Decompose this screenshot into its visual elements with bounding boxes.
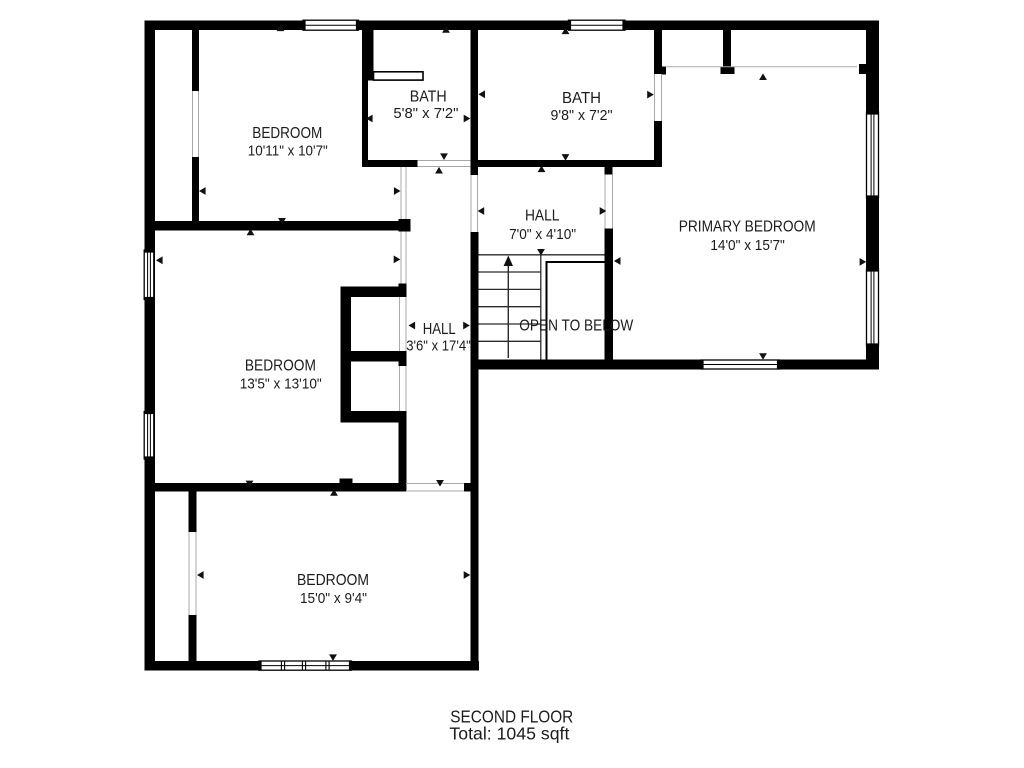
svg-text:BEDROOM: BEDROOM <box>297 572 369 589</box>
svg-text:5'8" x 7'2": 5'8" x 7'2" <box>393 105 458 122</box>
svg-text:10'11" x 10'7": 10'11" x 10'7" <box>248 142 328 159</box>
svg-text:BATH: BATH <box>410 88 447 105</box>
svg-text:BATH: BATH <box>562 90 601 107</box>
svg-text:PRIMARY BEDROOM: PRIMARY BEDROOM <box>679 218 816 235</box>
svg-text:3'6" x 17'4": 3'6" x 17'4" <box>406 338 471 355</box>
svg-text:BEDROOM: BEDROOM <box>245 358 316 375</box>
svg-text:7'0" x 4'10": 7'0" x 4'10" <box>509 226 576 243</box>
svg-text:HALL: HALL <box>525 208 560 225</box>
svg-text:HALL: HALL <box>423 321 456 338</box>
svg-text:13'5" x 13'10": 13'5" x 13'10" <box>240 376 322 393</box>
svg-text:14'0" x 15'7": 14'0" x 15'7" <box>710 237 785 254</box>
svg-text:OPEN TO BELOW: OPEN TO BELOW <box>519 317 634 334</box>
svg-text:9'8" x 7'2": 9'8" x 7'2" <box>551 107 613 124</box>
svg-text:BEDROOM: BEDROOM <box>252 125 322 142</box>
svg-text:Total: 1045 sqft: Total: 1045 sqft <box>449 724 569 744</box>
svg-text:15'0" x 9'4": 15'0" x 9'4" <box>300 590 367 607</box>
